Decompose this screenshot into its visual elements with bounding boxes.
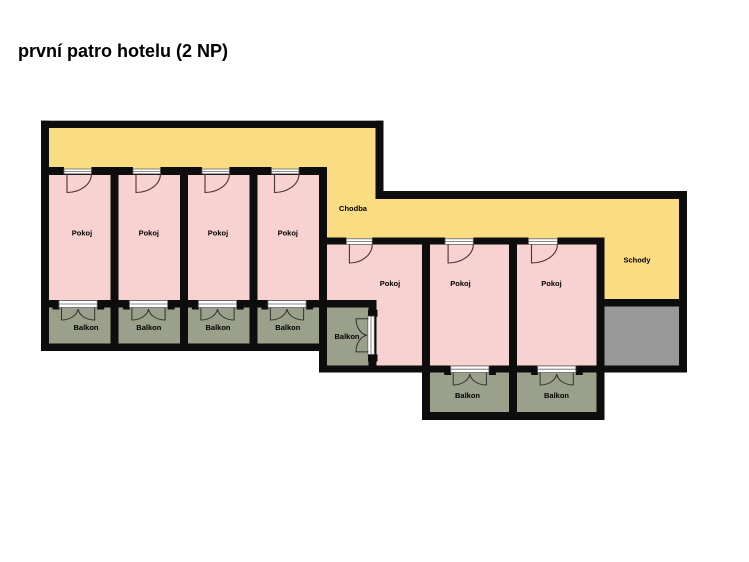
svg-text:Schody: Schody (623, 256, 651, 265)
svg-text:Pokoj: Pokoj (208, 229, 228, 238)
svg-text:první patro hotelu (2 NP): první patro hotelu (2 NP) (18, 41, 228, 61)
svg-text:Chodba: Chodba (339, 204, 368, 213)
svg-text:Pokoj: Pokoj (450, 279, 470, 288)
svg-text:Pokoj: Pokoj (72, 229, 92, 238)
svg-text:Balkon: Balkon (455, 391, 480, 400)
svg-text:Pokoj: Pokoj (380, 279, 400, 288)
svg-text:Balkon: Balkon (544, 391, 569, 400)
svg-text:Balkon: Balkon (275, 323, 300, 332)
svg-text:Pokoj: Pokoj (541, 279, 561, 288)
svg-text:Balkon: Balkon (136, 323, 161, 332)
svg-text:Balkon: Balkon (73, 323, 98, 332)
svg-text:Pokoj: Pokoj (278, 229, 298, 238)
svg-text:Balkon: Balkon (334, 332, 359, 341)
svg-text:Balkon: Balkon (205, 323, 230, 332)
svg-text:Pokoj: Pokoj (139, 229, 159, 238)
